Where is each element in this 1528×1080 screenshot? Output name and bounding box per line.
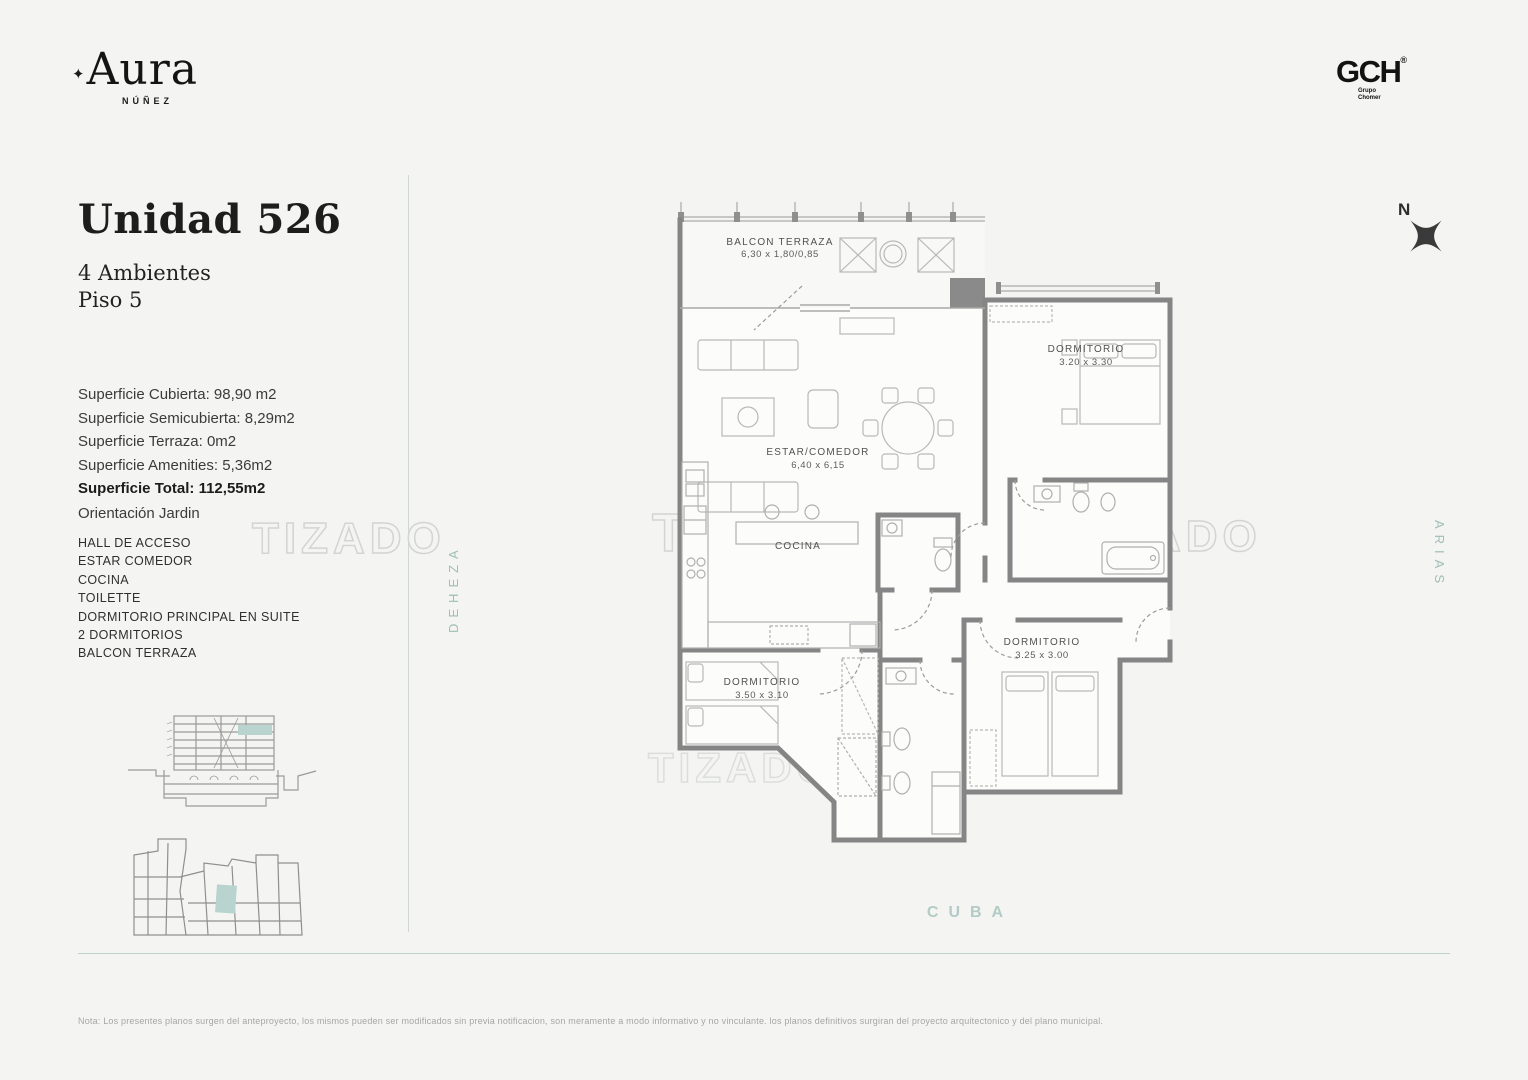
developer-logo: GCH® Grupo Chomer <box>1336 56 1436 102</box>
highlighted-unit <box>238 725 272 735</box>
developer-name: GCH <box>1336 54 1400 89</box>
bottom-divider <box>78 953 1450 954</box>
developer-subtitle: Chomer <box>1358 95 1436 102</box>
building-section-diagram <box>126 710 322 810</box>
unit-ambientes: 4 Ambientes <box>78 260 211 287</box>
surface-line: Superficie Amenities: 5,36m2 <box>78 454 295 478</box>
floor-plan: BALCON TERRAZA 6,30 x 1,80/0,85 ESTAR/CO… <box>650 190 1230 870</box>
compass-north-label: N <box>1398 200 1410 220</box>
room-list-item: DORMITORIO PRINCIPAL EN SUITE <box>78 608 300 626</box>
surface-line: Superficie Semicubierta: 8,29m2 <box>78 407 295 431</box>
balcony-floor-area <box>678 220 985 308</box>
room-list-item: HALL DE ACCESO <box>78 534 300 552</box>
brand-logo: ✦ Aura NÚÑEZ <box>72 48 198 106</box>
developer-subtitle: Grupo <box>1358 88 1436 95</box>
bedroom-left-label: DORMITORIO <box>724 677 801 688</box>
balcony-dims: 6,30 x 1,80/0,85 <box>741 249 819 260</box>
balcony-label: BALCON TERRAZA <box>726 237 833 248</box>
room-list-item: COCINA <box>78 571 300 589</box>
room-list-item: TOILETTE <box>78 589 300 607</box>
footer-note: Nota: Los presentes planos surgen del an… <box>78 1016 1178 1026</box>
street-label-arias: ARIAS <box>1432 520 1447 640</box>
surface-total: Superficie Total: 112,55m2 <box>78 477 295 501</box>
living-dims: 6,40 x 6,15 <box>791 460 845 471</box>
living-label: ESTAR/COMEDOR <box>766 447 869 458</box>
unit-title: Unidad 526 <box>78 196 341 243</box>
bedroom-suite-label: DORMITORIO <box>1048 344 1125 355</box>
vertical-divider <box>408 175 409 932</box>
unit-orientation: Orientación Jardin <box>78 502 295 526</box>
brand-location: NÚÑEZ <box>122 96 198 106</box>
unit-subtitle: 4 Ambientes Piso 5 <box>78 260 211 314</box>
registered-mark: ® <box>1400 55 1405 65</box>
surface-line: Superficie Terraza: 0m2 <box>78 430 295 454</box>
pergola-ticks <box>681 202 953 212</box>
bedroom-right-label: DORMITORIO <box>1004 637 1081 648</box>
bedroom-right-dims: 3.25 x 3.00 <box>1015 650 1069 661</box>
street-label-cuba: CUBA <box>860 904 1080 922</box>
room-list-item: 2 DORMITORIOS <box>78 626 300 644</box>
compass: N <box>1388 200 1452 260</box>
room-list: HALL DE ACCESO ESTAR COMEDOR COCINA TOIL… <box>78 534 300 663</box>
highlighted-unit <box>215 884 237 913</box>
street-label-deheza: DEHEZA <box>446 508 461 633</box>
bedroom-suite-dims: 3.20 x 3.30 <box>1059 357 1113 368</box>
surface-line: Superficie Cubierta: 98,90 m2 <box>78 383 295 407</box>
site-plan-diagram <box>128 833 308 940</box>
room-list-item: BALCON TERRAZA <box>78 644 300 662</box>
brand-name: Aura <box>87 48 198 92</box>
wall-pier <box>950 278 985 308</box>
kitchen-label: COCINA <box>775 541 821 552</box>
surface-details: Superficie Cubierta: 98,90 m2 Superficie… <box>78 383 295 525</box>
bedroom-left-dims: 3.50 x 3.10 <box>735 690 789 701</box>
room-list-item: ESTAR COMEDOR <box>78 552 300 570</box>
unit-floor: Piso 5 <box>78 287 211 314</box>
unit-floor-area <box>680 300 1170 840</box>
brand-sparkle-icon: ✦ <box>72 65 85 83</box>
